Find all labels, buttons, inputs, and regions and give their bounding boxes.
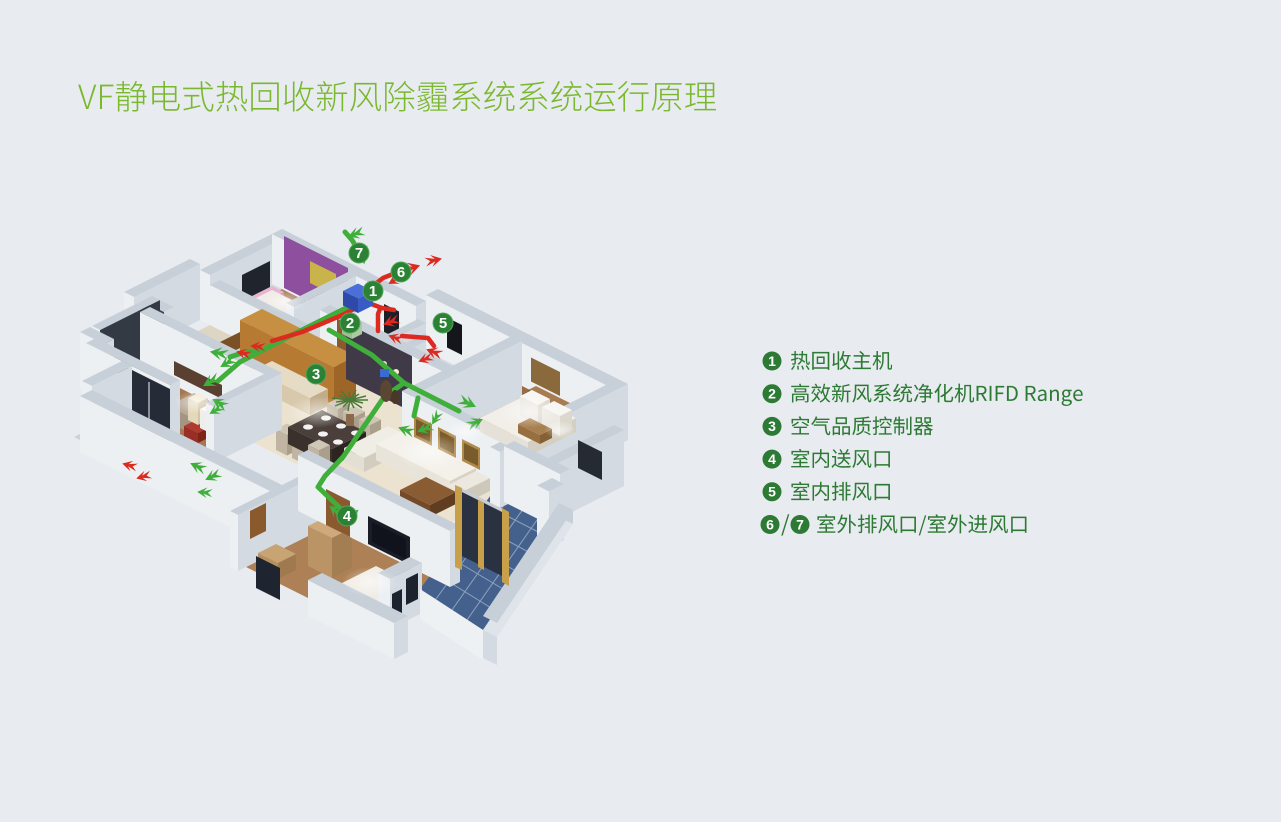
svg-text:2: 2: [768, 386, 776, 402]
svg-text:7: 7: [796, 516, 804, 532]
svg-text:6: 6: [397, 264, 405, 281]
svg-text:4: 4: [343, 508, 352, 525]
svg-text:5: 5: [439, 315, 447, 332]
svg-text:2: 2: [346, 315, 354, 332]
svg-text:1: 1: [768, 353, 776, 369]
svg-text:3: 3: [768, 418, 776, 434]
svg-text:4: 4: [768, 451, 776, 467]
svg-text:3: 3: [312, 366, 320, 383]
svg-text:7: 7: [355, 245, 363, 262]
svg-text:1: 1: [369, 283, 377, 300]
svg-text:5: 5: [768, 484, 776, 500]
svg-text:6: 6: [766, 516, 774, 532]
